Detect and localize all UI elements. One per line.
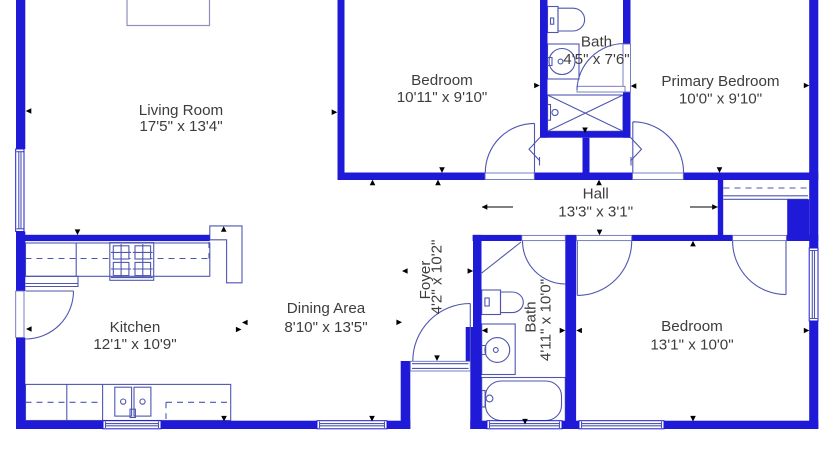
svg-text:12'1" x 10'9": 12'1" x 10'9": [93, 336, 176, 353]
svg-text:10'0" x 9'10": 10'0" x 9'10": [679, 91, 762, 108]
svg-text:Bedroom: Bedroom: [661, 318, 723, 335]
svg-text:Bath: Bath: [581, 34, 612, 51]
svg-text:Dining Area: Dining Area: [287, 300, 366, 317]
svg-text:17'5" x 13'4": 17'5" x 13'4": [139, 118, 222, 135]
svg-text:13'1" x 10'0": 13'1" x 10'0": [650, 336, 733, 353]
svg-text:4'11" x 10'0": 4'11" x 10'0": [538, 279, 555, 361]
svg-text:Living Room: Living Room: [139, 102, 223, 119]
svg-text:Primary Bedroom: Primary Bedroom: [661, 73, 779, 90]
svg-text:Bedroom: Bedroom: [411, 72, 473, 89]
svg-text:4'2" x 10'2": 4'2" x 10'2": [429, 240, 446, 315]
svg-text:8'10" x 13'5": 8'10" x 13'5": [284, 319, 367, 336]
svg-text:Hall: Hall: [583, 186, 609, 203]
svg-text:4'5" x 7'6": 4'5" x 7'6": [563, 51, 629, 68]
svg-text:10'11" x 9'10": 10'11" x 9'10": [397, 89, 488, 106]
svg-text:13'3" x 3'1": 13'3" x 3'1": [558, 203, 633, 220]
svg-text:Kitchen: Kitchen: [110, 319, 161, 336]
